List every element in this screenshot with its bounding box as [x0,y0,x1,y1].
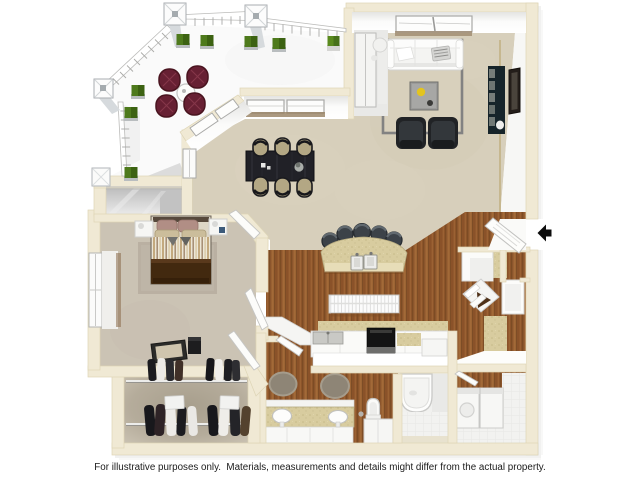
svg-text:For illustrative purposes only: For illustrative purposes only. Material… [94,462,545,473]
